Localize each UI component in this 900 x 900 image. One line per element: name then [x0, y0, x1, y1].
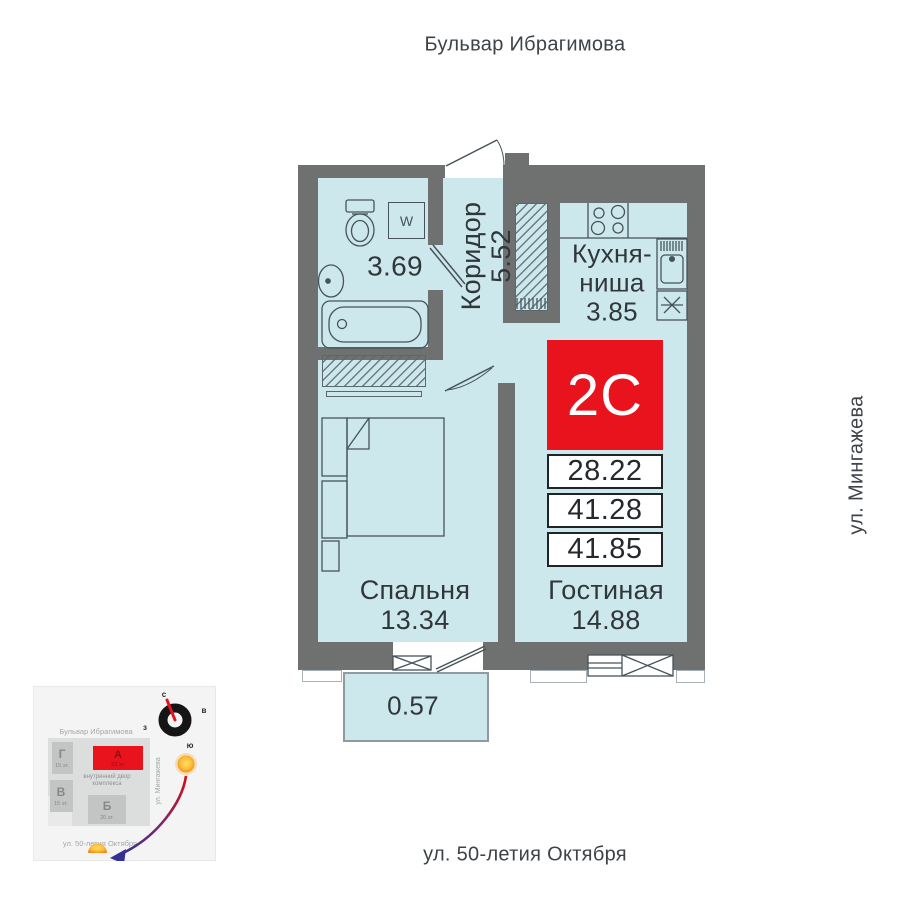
room-balcony-area: 0.57	[387, 691, 439, 720]
room-bedroom-name: Спальня	[360, 575, 471, 605]
room-bathroom-area: 3.69	[367, 250, 423, 281]
sink-icon	[319, 265, 344, 297]
kitchen-sink-icon	[657, 239, 687, 289]
building-v-label: В	[57, 785, 66, 799]
building-g-floors: 15 эт.	[55, 763, 69, 769]
room-corridor-area: 5.52	[486, 202, 516, 311]
apartment-badge: 2C 28.22 41.28 41.85	[547, 340, 663, 567]
room-kitchen-name-line2: ниша	[572, 268, 652, 297]
room-kitchen-name-line1: Кухня-	[572, 239, 652, 268]
compass-west: з	[143, 723, 147, 732]
bed-icon	[322, 418, 444, 571]
compass-east: в	[202, 706, 207, 715]
room-bedroom-area: 13.34	[360, 605, 471, 635]
sun-icon	[178, 756, 195, 773]
apartment-area-row: 41.28	[547, 493, 663, 528]
window-icon	[393, 656, 431, 670]
apartment-area-row: 41.85	[547, 532, 663, 567]
site-block: Г 15 эт. А 33 эт. В 15 эт. Б 20 эт. внут…	[48, 738, 150, 826]
room-bedroom-label: Спальня 13.34	[360, 575, 471, 635]
entrance-door-swing-icon	[446, 140, 504, 166]
room-kitchen-label: Кухня- ниша 3.85	[572, 239, 652, 326]
room-corridor-name: Коридор	[456, 202, 486, 311]
building-v-floors: 15 эт.	[54, 801, 68, 807]
window-icon	[588, 655, 673, 676]
minimap-street-top: Бульвар Ибрагимова	[59, 727, 133, 736]
building-b-floors: 20 эт.	[100, 815, 114, 821]
balcony-door-icon	[436, 646, 486, 672]
location-minimap: с в з ю Бульвар Ибрагимова ул. Мингажева…	[33, 686, 216, 861]
compass-north: с	[162, 690, 167, 699]
bedroom-door-swing-icon	[445, 366, 494, 391]
minimap-street-right: ул. Мингажева	[155, 757, 162, 804]
building-a-label: А	[114, 749, 122, 761]
closet-comb-icon	[517, 298, 545, 309]
compass-south: ю	[187, 741, 194, 750]
building-a-floors: 33 эт.	[111, 762, 125, 768]
stove-icon	[560, 203, 687, 238]
toilet-icon	[346, 200, 374, 246]
apartment-type-badge: 2C	[547, 340, 663, 450]
floorplan-page: Бульвар Ибрагимова ул. Мингажева ул. 50-…	[0, 0, 900, 900]
room-living-label: Гостиная 14.88	[548, 575, 664, 635]
hob-symbol-icon	[657, 291, 687, 320]
courtyard-caption-line2: комплекса	[92, 781, 122, 787]
bathtub-icon	[322, 301, 428, 348]
courtyard-caption-line1: внутренний двор	[83, 773, 131, 780]
washing-machine-label: W	[400, 213, 413, 229]
apartment-area-row: 28.22	[547, 454, 663, 489]
room-kitchen-area: 3.85	[572, 298, 652, 327]
washing-machine-icon: W	[388, 202, 425, 239]
building-g-label: Г	[59, 747, 66, 761]
room-living-area: 14.88	[548, 605, 664, 635]
building-b-label: Б	[103, 799, 112, 813]
room-corridor-label: Коридор 5.52	[456, 202, 516, 311]
room-living-name: Гостиная	[548, 575, 664, 605]
